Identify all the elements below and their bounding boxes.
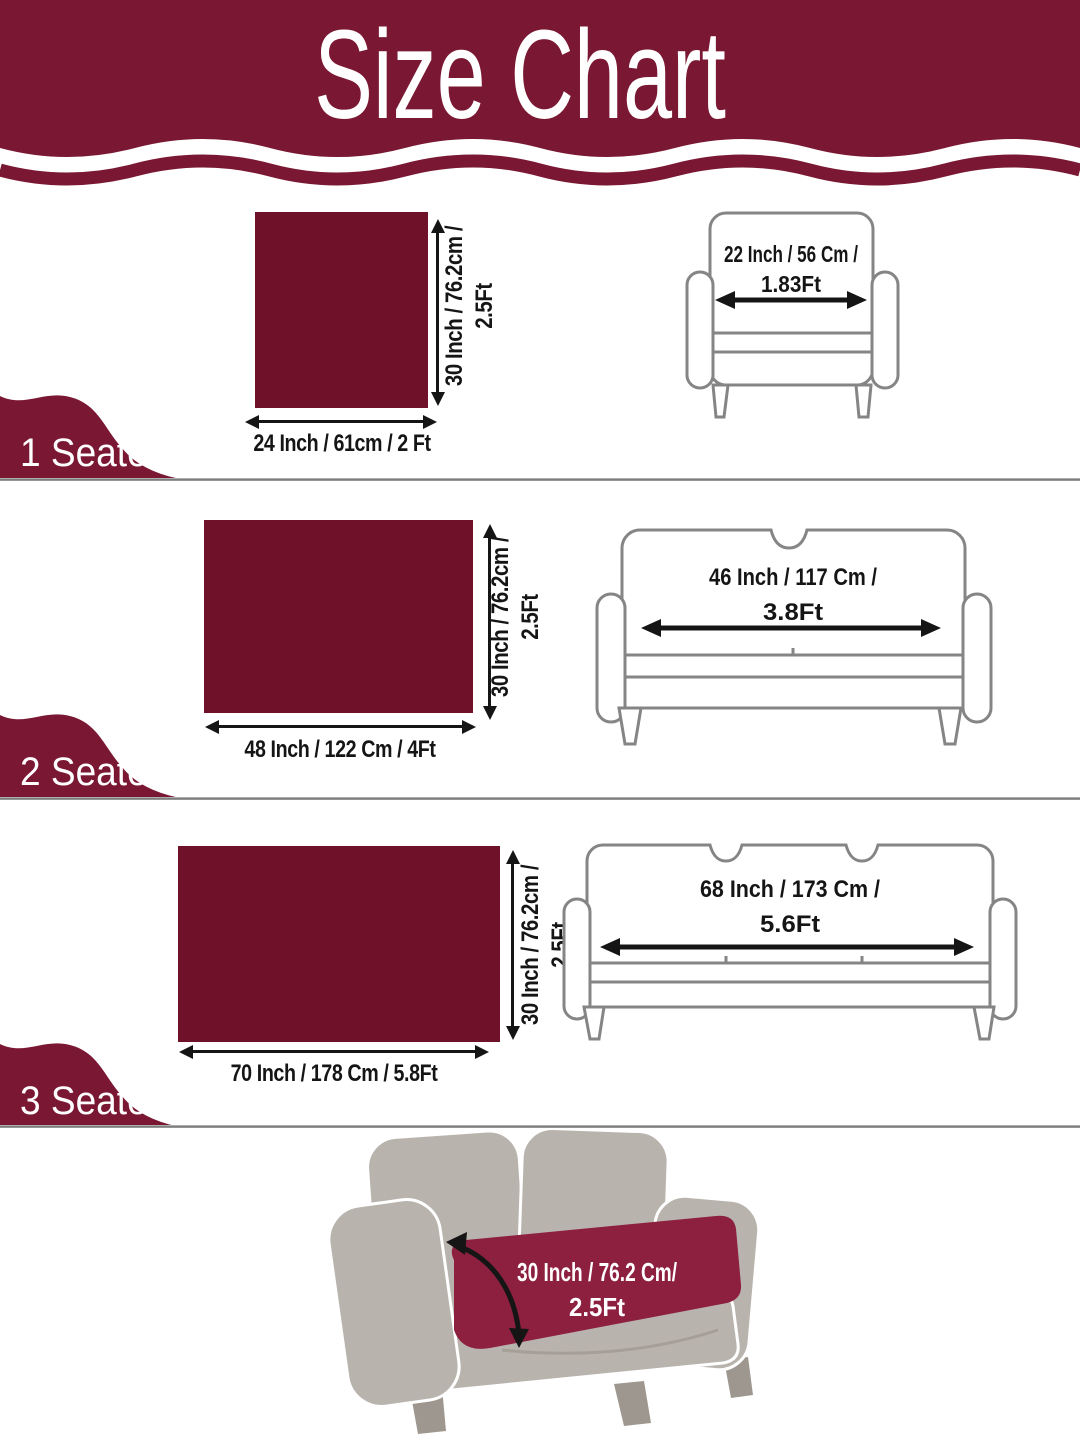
two-seater-cover-swatch <box>204 520 473 713</box>
sofa-arm-left <box>564 899 590 1019</box>
two-seater-label-blob: 2 Seater <box>0 707 210 799</box>
two-seater-sofa-illustration: 46 Inch / 117 Cm / 3.8Ft <box>555 522 1005 762</box>
seat-depth-label-line2: 2.5Ft <box>569 1292 625 1322</box>
three-seater-label-blob: 3 Seater <box>0 1036 210 1128</box>
sofa-arm-left <box>597 594 625 722</box>
height-label-line2: 2.5Ft <box>471 283 498 328</box>
size-chart-infographic: Size Chart 30 Inch / 76.2cm / 2.5Ft 24 I… <box>0 0 1080 1440</box>
section-divider <box>0 797 1080 800</box>
one-seater-width-arrow <box>258 420 424 423</box>
chair-arm-left <box>687 272 713 388</box>
three-seater-cover-swatch <box>178 846 500 1042</box>
sofa-arm-right <box>990 899 1016 1019</box>
one-seater-label: 1 Seater <box>20 431 160 475</box>
sofa-leg-front-center <box>614 1381 651 1426</box>
one-seater-cover-swatch <box>255 212 428 408</box>
two-seater-width-label: 48 Inch / 122 Cm / 4Ft <box>242 736 439 764</box>
three-seater-sofa-illustration: 68 Inch / 173 Cm / 5.6Ft <box>550 835 1030 1065</box>
sofa-width-label-line2: 5.6Ft <box>760 911 820 938</box>
height-label-line2: 2.5Ft <box>517 594 544 639</box>
sofa-leg-right <box>939 708 961 744</box>
seat-depth-label-line1: 30 Inch / 76.2 Cm/ <box>517 1257 677 1287</box>
height-label-line1: 30 Inch / 76.2cm / <box>517 865 544 1025</box>
three-seater-width-label: 70 Inch / 178 Cm / 5.8Ft <box>227 1060 440 1088</box>
page-title: Size Chart <box>156 10 884 140</box>
two-seater-label: 2 Seater <box>20 750 160 794</box>
sofa-width-label-line1: 46 Inch / 117 Cm / <box>709 564 877 591</box>
height-label-line1: 30 Inch / 76.2cm / <box>487 537 514 697</box>
sofa-leg-left <box>584 1007 604 1039</box>
one-seater-label-blob: 1 Seater <box>0 388 210 480</box>
one-seater-width-label: 24 Inch / 61cm / 2 Ft <box>252 430 432 458</box>
one-seater-height-label: 30 Inch / 76.2cm / 2.5Ft <box>440 204 500 408</box>
one-seater-height-arrow <box>436 232 439 393</box>
chair-width-label-line2: 1.83Ft <box>761 271 821 297</box>
section-divider <box>0 478 1080 481</box>
chair-leg-right <box>856 385 871 417</box>
chair-width-label-line1: 22 Inch / 56 Cm / <box>724 241 858 267</box>
one-seater-chair-illustration: 22 Inch / 56 Cm / 1.83Ft <box>675 200 915 435</box>
sofa-leg-right <box>974 1007 994 1039</box>
header-wave-stripe <box>0 161 1080 179</box>
three-seater-label: 3 Seater <box>20 1079 160 1123</box>
chair-arm-right <box>872 272 898 388</box>
two-seater-width-arrow <box>218 725 463 728</box>
sofa-width-label-line1: 68 Inch / 173 Cm / <box>700 876 880 903</box>
three-seater-height-arrow <box>511 863 514 1027</box>
sofa-width-label-line2: 3.8Ft <box>763 599 823 626</box>
two-seater-height-label: 30 Inch / 76.2cm / 2.5Ft <box>486 515 546 719</box>
covered-sofa-illustration: 30 Inch / 76.2 Cm/ 2.5Ft <box>320 1128 780 1440</box>
height-label-line1: 30 Inch / 76.2cm / <box>441 226 468 386</box>
chair-leg-left <box>713 385 728 417</box>
three-seater-width-arrow <box>192 1050 476 1053</box>
sofa-arm-right <box>963 594 991 722</box>
sofa-leg-left <box>619 708 641 744</box>
